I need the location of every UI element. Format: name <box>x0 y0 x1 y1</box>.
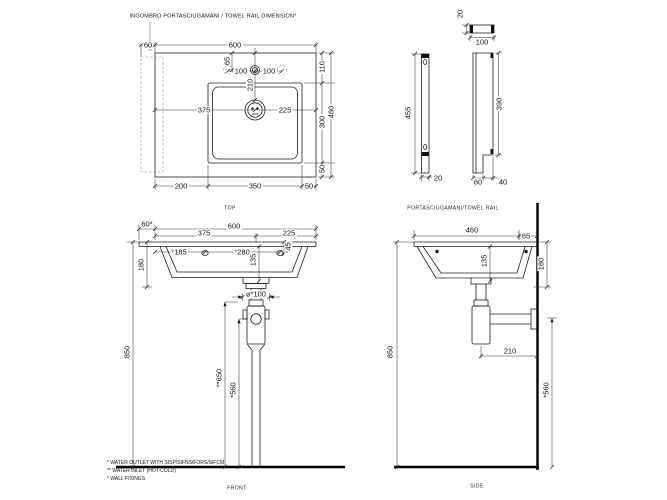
top-dim-overall-depth: 460 <box>327 105 335 120</box>
rail-dim-notch: 40 <box>498 178 508 186</box>
front-view-caption: FRONT <box>226 487 247 492</box>
top-dim-rail-overhang: 60 <box>143 41 153 49</box>
front-dim-fixing-drop: °45 <box>284 241 292 254</box>
front-dim-outlet-dia: ⌀*100 <box>245 290 267 298</box>
top-dim-width: 600 <box>228 41 243 49</box>
side-dim-front-height: 180 <box>537 257 545 272</box>
front-dim-drain-to-right: 225 <box>282 229 297 237</box>
side-dim-rim-height: 850 <box>386 345 394 360</box>
rail-dim-cap-height: 20 <box>456 9 464 19</box>
rail-dim-foot-width: 60 <box>473 178 483 186</box>
top-dim-left-to-bowl: 200 <box>174 182 189 190</box>
rail-dim-length: 455 <box>404 106 412 121</box>
technical-drawing-sheet: INGOMBRO PORTASCIUGAMANI / TOWEL RAIL DI… <box>0 0 667 500</box>
side-dim-back-offset: 65 <box>521 232 531 240</box>
top-dim-tap-right: 100 <box>262 67 277 75</box>
front-dim-width: 600 <box>227 222 242 230</box>
top-dim-tap-to-drain: 210 <box>246 78 254 93</box>
top-dim-tap-left: 100 <box>234 67 249 75</box>
side-dim-outlet-height: *560 <box>542 381 550 398</box>
rail-dim-bar-width: 20 <box>433 174 443 182</box>
front-dim-front-height: 180 <box>137 258 145 273</box>
top-dim-bowl-to-right: 50 <box>304 182 314 190</box>
front-dim-outlet-height: *560 <box>229 381 237 398</box>
side-dim-trap-to-wall: 210 <box>503 347 518 355</box>
top-dim-back-to-bowl: 110 <box>318 60 326 74</box>
footnote-water-inlet: ** WATER INLET (HOT-COLD) <box>107 469 176 474</box>
washbasin-dimension-lineart <box>0 0 667 500</box>
top-dim-bowl-width: 350 <box>248 182 263 190</box>
drawing-title: INGOMBRO PORTASCIUGAMANI / TOWEL RAIL DI… <box>128 14 297 20</box>
rail-view-caption: PORTASCIUGAMANI/TOWEL RAIL <box>406 207 500 212</box>
front-dim-rim-height: 850 <box>123 345 131 360</box>
side-dim-basin-depth: 135 <box>480 254 488 269</box>
top-dim-tap-from-back: 65 <box>223 56 231 66</box>
front-dim-drain-from-left: 375 <box>197 229 212 237</box>
front-dim-inlet-height: **650 <box>215 368 223 388</box>
front-dim-fixing-from-left: °185 <box>170 248 188 256</box>
side-dim-depth: 460 <box>465 226 480 234</box>
rail-dim-drop: 390 <box>495 97 503 112</box>
front-dim-basin-depth: 135 <box>249 253 257 268</box>
top-dim-front-edge: 50 <box>318 164 326 174</box>
footnote-wall-fixings: ° WALL FIXINGS <box>107 477 145 482</box>
top-dim-drain-from-left: 375 <box>197 106 212 114</box>
top-dim-bowl-depth: 300 <box>318 115 326 130</box>
footnote-water-outlet: * WATER OUTLET WITH SISP/SIFNS/FORS/SIFC… <box>107 461 224 466</box>
front-dim-rail-overhang: 60* <box>140 220 153 228</box>
top-view-caption: TOP <box>223 207 237 212</box>
rail-dim-profile-width: 100 <box>475 38 490 46</box>
top-dim-drain-to-right: 225 <box>278 106 293 114</box>
side-view-caption: SIDE <box>469 485 484 490</box>
